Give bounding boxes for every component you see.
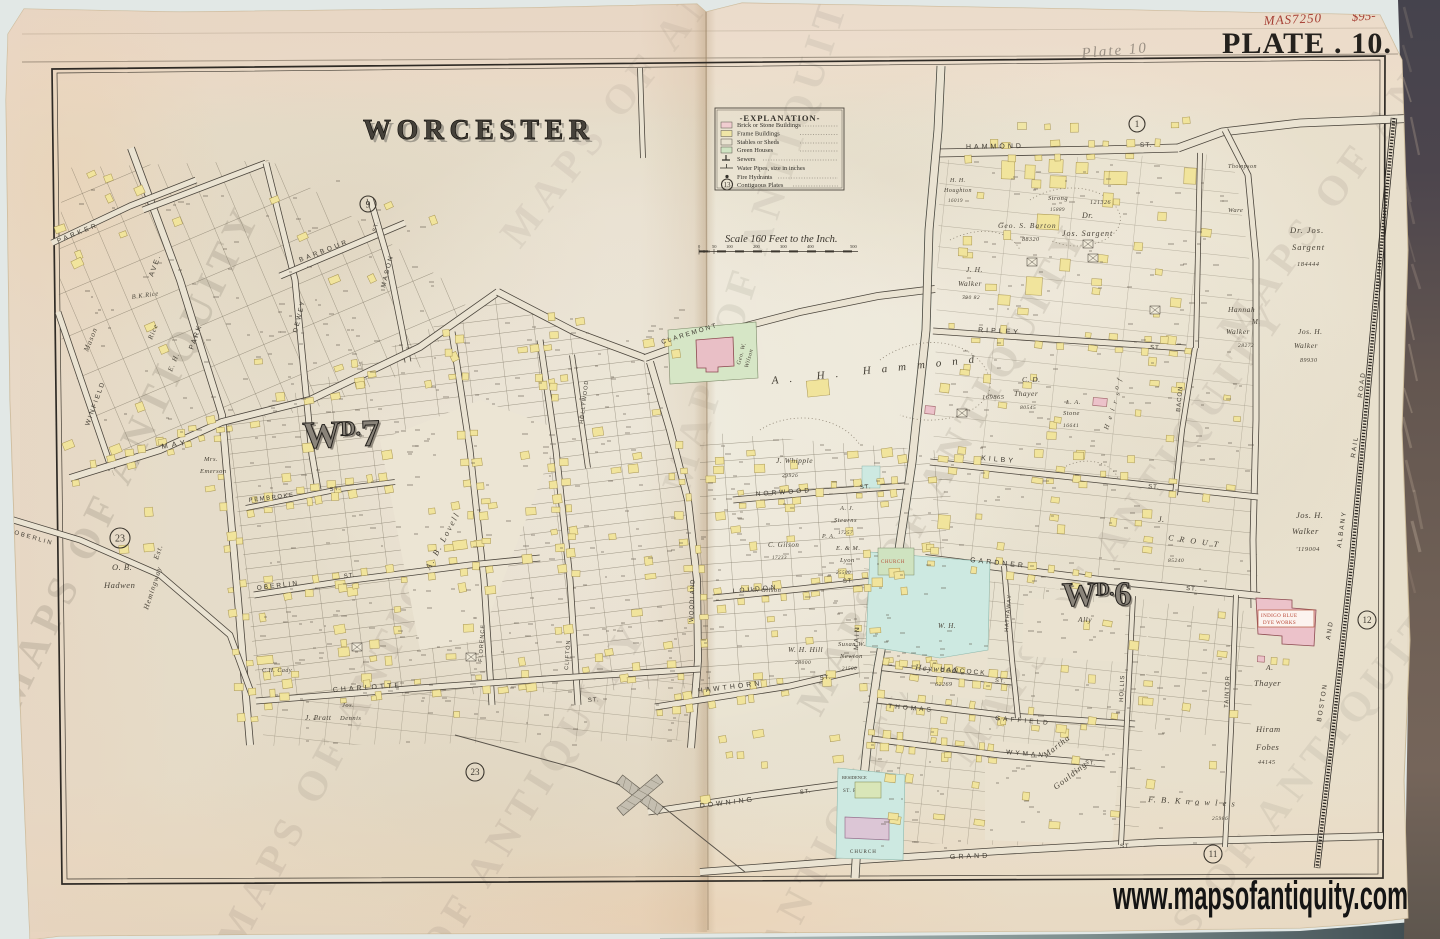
svg-text:15889: 15889 xyxy=(1050,208,1065,213)
svg-text:184444: 184444 xyxy=(1297,261,1320,268)
svg-text:Fire Hydrants: Fire Hydrants xyxy=(737,174,773,181)
svg-text:ST.: ST. xyxy=(1148,484,1160,491)
svg-text:Hannah: Hannah xyxy=(1227,305,1255,314)
svg-text:ST.: ST. xyxy=(995,678,1006,685)
svg-text:300: 300 xyxy=(780,244,788,249)
svg-text:Frame Buildings: Frame Buildings xyxy=(737,131,780,138)
svg-text:Strong: Strong xyxy=(1048,195,1068,202)
svg-text:CHURCH: CHURCH xyxy=(850,850,877,855)
svg-text:25986: 25986 xyxy=(1212,816,1228,822)
svg-text:Walker: Walker xyxy=(958,279,982,288)
svg-text:62269: 62269 xyxy=(935,682,953,688)
svg-text:790 82: 790 82 xyxy=(962,295,980,301)
svg-text:Green Houses: Green Houses xyxy=(737,147,774,154)
svg-text:Dr. Jos.: Dr. Jos. xyxy=(1289,225,1324,235)
svg-text:Newton: Newton xyxy=(839,653,863,660)
svg-text:Stearns: Stearns xyxy=(834,517,857,524)
svg-text:ST.: ST. xyxy=(1150,345,1162,352)
svg-text:Contiguous Plates: Contiguous Plates xyxy=(737,182,784,189)
svg-text:PLATE . 10.: PLATE . 10. xyxy=(1222,27,1394,60)
svg-text:9: 9 xyxy=(366,200,371,210)
svg-text:88320: 88320 xyxy=(1022,237,1040,243)
svg-text:12: 12 xyxy=(1363,615,1372,625)
svg-text:Sargent: Sargent xyxy=(1292,242,1325,252)
svg-text:ST.: ST. xyxy=(588,697,600,704)
svg-text:J. Whipple: J. Whipple xyxy=(776,456,813,465)
svg-text:28000: 28000 xyxy=(795,660,811,666)
svg-text:29926: 29926 xyxy=(782,473,798,479)
svg-text:H. H.: H. H. xyxy=(949,178,966,184)
svg-text:Emerson: Emerson xyxy=(199,468,227,475)
svg-text:121326: 121326 xyxy=(1090,200,1111,206)
svg-text:GRAND: GRAND xyxy=(950,853,991,861)
svg-text:11: 11 xyxy=(1209,849,1218,859)
svg-text:50: 50 xyxy=(712,244,717,249)
svg-text:23: 23 xyxy=(115,534,125,545)
svg-text:Stone: Stone xyxy=(1063,410,1080,417)
svg-text:16641: 16641 xyxy=(1063,422,1079,429)
svg-text:25500: 25500 xyxy=(836,571,851,576)
svg-text:1: 1 xyxy=(1135,119,1140,129)
svg-text:Sewers: Sewers xyxy=(737,156,756,163)
svg-text:Brick or Stone Buildings: Brick or Stone Buildings xyxy=(737,122,801,129)
svg-text:M.: M. xyxy=(1251,318,1261,326)
svg-text:Walker: Walker xyxy=(1226,327,1250,336)
svg-text:Dr.: Dr. xyxy=(1081,211,1094,220)
svg-text:'119004: '119004 xyxy=(1296,546,1320,553)
svg-text:ST.: ST. xyxy=(1186,586,1198,593)
svg-text:17257: 17257 xyxy=(838,531,853,536)
svg-text:CHURCH: CHURCH xyxy=(881,560,905,565)
svg-text:13: 13 xyxy=(724,181,732,189)
svg-text:E. & M.: E. & M. xyxy=(835,545,860,552)
svg-text:C. D.: C. D. xyxy=(1022,375,1041,384)
svg-text:44145: 44145 xyxy=(1258,759,1276,766)
svg-text:Hadwen: Hadwen xyxy=(103,580,135,590)
svg-text:Thayer: Thayer xyxy=(1014,389,1038,398)
svg-text:100: 100 xyxy=(726,244,734,249)
svg-text:169865: 169865 xyxy=(982,394,1005,401)
svg-text:16019: 16019 xyxy=(948,199,963,204)
svg-text:23: 23 xyxy=(471,767,481,777)
svg-text:Jos.: Jos. xyxy=(342,702,354,709)
svg-text:Thayer: Thayer xyxy=(1254,678,1281,688)
svg-text:17233: 17233 xyxy=(772,556,787,561)
svg-text:RESIDENCE: RESIDENCE xyxy=(842,775,867,780)
svg-text:200: 200 xyxy=(753,244,761,249)
svg-text:Ware: Ware xyxy=(1228,207,1243,214)
svg-text:Geo. S. Barton: Geo. S. Barton xyxy=(998,221,1057,230)
svg-text:J.: J. xyxy=(1158,515,1165,524)
svg-text:J. Pratt: J. Pratt xyxy=(305,713,332,722)
svg-text:DYE WORKS: DYE WORKS xyxy=(1263,621,1296,626)
svg-text:HAMMOND: HAMMOND xyxy=(966,143,1024,151)
svg-text:21500: 21500 xyxy=(842,667,857,672)
svg-text:J. H.: J. H. xyxy=(966,265,983,274)
svg-text:Water Pipes, size in inches: Water Pipes, size in inches xyxy=(737,165,806,172)
svg-text:WORCESTER: WORCESTER xyxy=(363,115,600,146)
svg-text:80545: 80545 xyxy=(1020,404,1036,411)
svg-text:INDIGO BLUE: INDIGO BLUE xyxy=(1261,614,1297,619)
svg-text:ST.: ST. xyxy=(1120,844,1132,850)
svg-text:Lyon: Lyon xyxy=(839,557,855,564)
svg-text:Fobes: Fobes xyxy=(1255,742,1279,752)
svg-text:www.mapsofantiquity.com: www.mapsofantiquity.com xyxy=(1112,874,1408,918)
svg-text:Mrs.: Mrs. xyxy=(203,456,218,463)
svg-text:28272: 28272 xyxy=(1238,343,1254,349)
svg-text:400: 400 xyxy=(807,244,815,249)
svg-text:W. H. Hill: W. H. Hill xyxy=(788,645,823,654)
svg-text:89930: 89930 xyxy=(1300,358,1318,364)
svg-text:ST.: ST. xyxy=(843,578,855,585)
svg-text:Ally: Ally xyxy=(1077,615,1092,624)
svg-text:Walker: Walker xyxy=(1294,341,1318,350)
svg-text:W. H.: W. H. xyxy=(938,622,956,630)
svg-text:C. Gilson: C. Gilson xyxy=(768,541,799,549)
svg-text:Dennis: Dennis xyxy=(339,715,361,722)
svg-text:Thompson: Thompson xyxy=(1228,164,1257,170)
svg-text:C. Gilson: C. Gilson xyxy=(752,587,781,594)
svg-text:Jos. Sargent: Jos. Sargent xyxy=(1062,229,1113,238)
svg-text:C.H. Cady: C.H. Cady xyxy=(262,668,292,674)
svg-text:500: 500 xyxy=(850,244,858,249)
svg-text:85240: 85240 xyxy=(1168,557,1184,564)
svg-text:ST.: ST. xyxy=(860,484,872,491)
svg-text:L. A.: L. A. xyxy=(1065,399,1081,406)
svg-text:P. A.: P. A. xyxy=(821,534,835,540)
svg-text:Walker: Walker xyxy=(1292,526,1319,536)
svg-text:Hiram: Hiram xyxy=(1255,724,1281,734)
svg-text:Stables or Sheds: Stables or Sheds xyxy=(737,139,780,146)
svg-text:Jos. H.: Jos. H. xyxy=(1296,510,1323,520)
svg-text:O. B.: O. B. xyxy=(112,562,132,572)
svg-text:Susan W.: Susan W. xyxy=(838,641,866,648)
svg-text:Houghton: Houghton xyxy=(943,188,972,194)
svg-text:Jos. H.: Jos. H. xyxy=(1298,327,1323,336)
svg-text:A. J.: A. J. xyxy=(839,505,854,512)
svg-text:A.: A. xyxy=(1265,663,1273,672)
svg-text:ST.: ST. xyxy=(1140,142,1153,149)
